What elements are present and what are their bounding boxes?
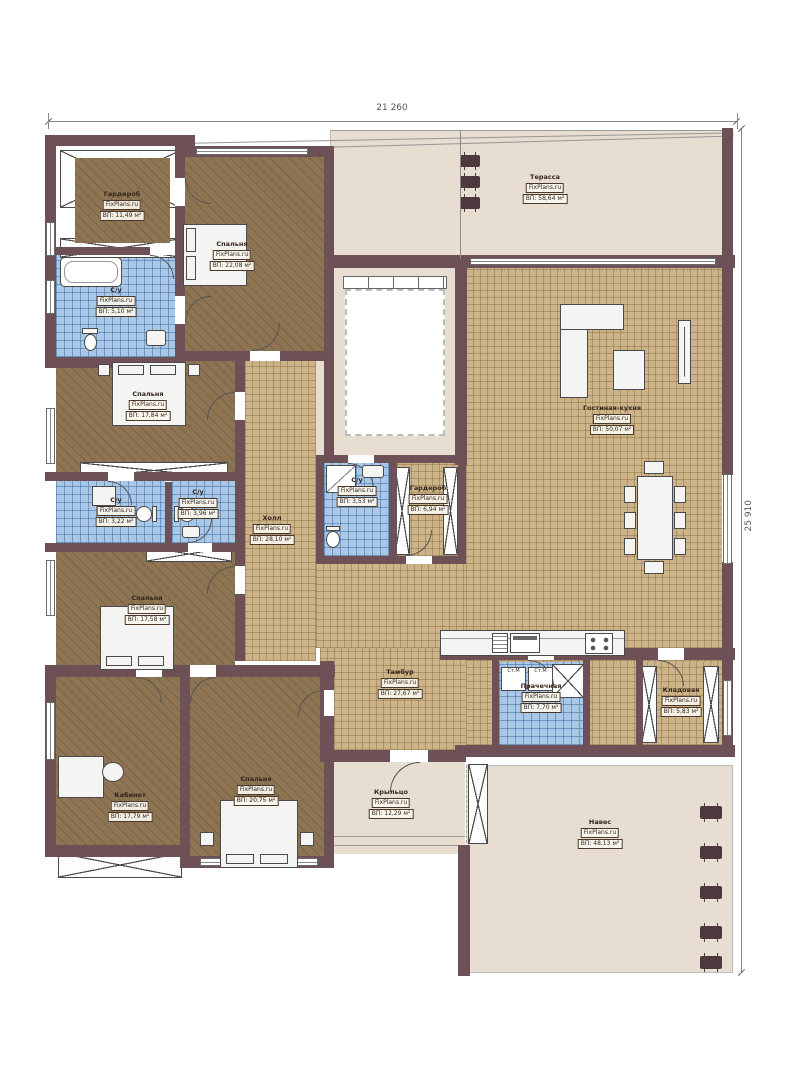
nightstand [300, 832, 314, 846]
window [46, 280, 55, 314]
room-name: Навес [589, 818, 611, 827]
column-post [700, 846, 722, 859]
wall [458, 845, 470, 976]
kitchen-sink [510, 633, 540, 653]
nightstand [98, 364, 110, 376]
door-gap [348, 455, 374, 463]
door-gap [190, 665, 216, 677]
office-chair [102, 762, 124, 782]
wall [389, 463, 397, 556]
pillow [186, 228, 196, 252]
dimension-tick [738, 969, 745, 976]
bathtub [60, 257, 122, 287]
door-gap [188, 543, 212, 552]
toilet [84, 334, 97, 351]
window [46, 560, 55, 616]
door-gap [108, 472, 134, 481]
dimension-line-top [48, 121, 737, 122]
roof-valley-line [460, 131, 461, 259]
watermark: FixPlans.ru [97, 506, 135, 516]
chair [644, 561, 664, 574]
pillow [138, 656, 164, 666]
room-label-wardrobe: Гардероб FixPlans.ru ВП: 11,49 м² [100, 190, 145, 221]
wall [458, 463, 466, 556]
wall [722, 128, 733, 260]
toilet [326, 531, 340, 548]
wall [212, 543, 236, 552]
room-label-storage: Кладовая FixPlans.ru ВП: 5,83 м² [661, 686, 702, 717]
room-area: ВП: 50,07 м² [590, 425, 635, 435]
pillow [118, 365, 144, 375]
wall [324, 146, 334, 462]
room-name: С/у [110, 286, 121, 295]
door-gap [658, 648, 684, 660]
room-area: ВП: 48,13 м² [578, 839, 623, 849]
dimension-ext [737, 113, 738, 129]
chair [644, 461, 664, 474]
room-name: С/у [110, 496, 121, 505]
room-area: ВП: 17,84 м² [126, 411, 171, 421]
door-gap [235, 566, 245, 594]
pillow [260, 854, 288, 864]
chair [674, 512, 686, 529]
room-label-cabinet: Кабинет FixPlans.ru ВП: 17,79 м² [108, 791, 153, 822]
watermark: FixPlans.ru [103, 200, 141, 210]
wall [455, 745, 735, 757]
chair [624, 538, 636, 555]
stove [585, 633, 613, 654]
wall [45, 135, 195, 146]
room-area: ВП: 3,22 м² [96, 517, 137, 527]
room-area: ВП: 17,58 м² [125, 615, 170, 625]
floor-plan: Ст.М Ст.М Гардероб FixPlans.ru ВП: 11,49… [0, 0, 792, 1080]
room-label-bedroom-mid: Спальня FixPlans.ru ВП: 17,84 м² [126, 390, 171, 421]
tv-unit [678, 320, 691, 384]
column-post [460, 176, 480, 188]
wall [316, 463, 324, 556]
wall [235, 420, 245, 566]
pillow [150, 365, 176, 375]
door-gap [235, 392, 245, 420]
room-label-bedroom-top: Спальня FixPlans.ru ВП: 22,08 м² [210, 240, 255, 271]
room-area: ВП: 17,79 м² [108, 812, 153, 822]
room-area: ВП: 27,67 м² [378, 689, 423, 699]
watermark: FixPlans.ru [522, 692, 560, 702]
room-name: Гардероб [410, 484, 447, 493]
floor-tambour [320, 648, 466, 750]
wall [175, 351, 250, 361]
door-gap [252, 351, 280, 361]
chair [674, 486, 686, 503]
column-post [700, 956, 722, 969]
watermark: FixPlans.ru [129, 400, 167, 410]
sink-drainer [492, 633, 508, 653]
window [46, 408, 55, 464]
dining-table [637, 476, 673, 560]
column-post [460, 155, 480, 167]
armchair [613, 350, 645, 390]
watermark: FixPlans.ru [662, 696, 700, 706]
floor-canopy [466, 765, 733, 973]
watermark: FixPlans.ru [381, 678, 419, 688]
dimension-width: 21 260 [350, 103, 434, 113]
room-area: ВП: 3,53 м² [337, 497, 378, 507]
wall [432, 556, 466, 564]
toilet [136, 506, 152, 522]
room-label-tambour: Тамбур FixPlans.ru ВП: 27,67 м² [378, 668, 423, 699]
window [46, 222, 55, 256]
pillow [226, 854, 254, 864]
door-gap [175, 178, 185, 206]
chair [624, 512, 636, 529]
sofa [560, 304, 624, 330]
room-area: ВП: 58,64 м² [523, 194, 568, 204]
watermark: FixPlans.ru [253, 524, 291, 534]
room-name: Кабинет [114, 791, 145, 800]
wall [316, 455, 348, 463]
room-label-living-kitchen: Гостиная-кухня FixPlans.ru ВП: 50,07 м² [583, 404, 641, 435]
dimension-line-right [741, 128, 742, 973]
room-name: Гардероб [104, 190, 141, 199]
window [723, 474, 732, 564]
wall [134, 472, 236, 481]
room-name: Крыльцо [374, 788, 408, 797]
wall [316, 556, 406, 564]
room-area: ВП: 5,10 м² [96, 307, 137, 317]
column-post [700, 886, 722, 899]
room-name: С/у [192, 488, 203, 497]
room-area: ВП: 22,08 м² [210, 261, 255, 271]
dimension-height: 25 910 [744, 500, 754, 532]
room-area: ВП: 20,75 м² [234, 796, 279, 806]
washer-label: Ст.М [534, 668, 546, 674]
room-label-bedroom-low: Спальня FixPlans.ru ВП: 17,58 м² [125, 594, 170, 625]
wall [583, 660, 590, 747]
room-name: Тамбур [386, 668, 414, 677]
room-area: ВП: 7,70 м² [521, 703, 562, 713]
room-name: Гостиная-кухня [583, 404, 641, 413]
washer-label: Ст.М [507, 668, 519, 674]
wall [53, 247, 150, 255]
closet-x [703, 666, 719, 743]
door-gap [175, 296, 185, 324]
window [470, 258, 716, 265]
room-label-bath-396: С/у FixPlans.ru ВП: 3,96 м² [178, 488, 219, 519]
room-name: Спальня [131, 594, 162, 603]
pillow [186, 256, 196, 280]
door-gap [324, 690, 334, 716]
wall [492, 660, 499, 747]
toilet-tank [152, 506, 157, 522]
room-label-hall: Холл FixPlans.ru ВП: 28,10 м² [250, 514, 295, 545]
chair [624, 486, 636, 503]
watermark: FixPlans.ru [526, 183, 564, 193]
room-name: Спальня [132, 390, 163, 399]
wall [722, 255, 733, 475]
column-post [700, 926, 722, 939]
wall [374, 455, 466, 463]
floor-hall [245, 361, 316, 661]
closet-x [641, 666, 657, 743]
window [196, 148, 308, 155]
column-post [460, 197, 480, 209]
watermark: FixPlans.ru [97, 296, 135, 306]
watermark: FixPlans.ru [409, 494, 447, 504]
watermark: FixPlans.ru [372, 798, 410, 808]
room-area: ВП: 6,94 м² [408, 505, 449, 515]
room-area: ВП: 11,49 м² [100, 211, 145, 221]
room-label-bedroom-bottom: Спальня FixPlans.ru ВП: 20,75 м² [234, 775, 279, 806]
room-name: С/у [351, 476, 362, 485]
room-label-terrace: Терасса FixPlans.ru ВП: 58,64 м² [523, 173, 568, 204]
room-label-bath-510: С/у FixPlans.ru ВП: 5,10 м² [96, 286, 137, 317]
desk [58, 756, 104, 798]
nightstand [200, 832, 214, 846]
window-x [468, 764, 488, 844]
chair [674, 538, 686, 555]
room-area: ВП: 28,10 м² [250, 535, 295, 545]
watermark: FixPlans.ru [179, 498, 217, 508]
room-label-laundry: Прачечная FixPlans.ru ВП: 7,70 м² [521, 682, 562, 713]
wall [455, 255, 467, 465]
room-name: Терасса [530, 173, 560, 182]
watermark: FixPlans.ru [111, 801, 149, 811]
column-post [700, 806, 722, 819]
atrium-glazing [343, 276, 447, 289]
watermark: FixPlans.ru [593, 414, 631, 424]
pillow [106, 656, 132, 666]
room-area: ВП: 5,83 м² [661, 707, 702, 717]
watermark: FixPlans.ru [213, 250, 251, 260]
nightstand [188, 364, 200, 376]
door-gap [390, 750, 428, 762]
wall [45, 543, 188, 552]
window [46, 702, 55, 760]
room-name: Холл [262, 514, 281, 523]
watermark: FixPlans.ru [581, 828, 619, 838]
room-label-wardrobe-center: Гардероб FixPlans.ru ВП: 6,94 м² [408, 484, 449, 515]
wall [235, 594, 245, 661]
watermark: FixPlans.ru [237, 785, 275, 795]
wall [235, 361, 245, 392]
washbasin [146, 330, 166, 346]
room-name: Спальня [240, 775, 271, 784]
room-label-bath-322: С/у FixPlans.ru ВП: 3,22 м² [96, 496, 137, 527]
wall [636, 660, 643, 747]
window [723, 680, 732, 736]
wall [45, 845, 190, 857]
door-gap [406, 556, 432, 564]
room-label-canopy: Навес FixPlans.ru ВП: 48,13 м² [578, 818, 623, 849]
wall [216, 665, 335, 677]
atrium-opening-dashed [345, 289, 445, 436]
wall [722, 562, 733, 660]
wall [320, 750, 390, 762]
porch-steps [331, 836, 465, 846]
wall [45, 472, 108, 481]
dimension-ext [48, 113, 49, 129]
room-area: ВП: 12,29 м² [369, 809, 414, 819]
door-gap [150, 247, 174, 255]
room-label-bath-353: С/у FixPlans.ru ВП: 3,53 м² [337, 476, 378, 507]
washbasin [182, 526, 200, 538]
wall [165, 482, 172, 543]
watermark: FixPlans.ru [128, 604, 166, 614]
room-area: ВП: 3,96 м² [178, 509, 219, 519]
room-name: Прачечная [521, 682, 562, 691]
room-label-porch: Крыльцо FixPlans.ru ВП: 12,29 м² [369, 788, 414, 819]
room-name: Кладовая [663, 686, 700, 695]
watermark: FixPlans.ru [338, 486, 376, 496]
wall [280, 351, 334, 361]
room-name: Спальня [216, 240, 247, 249]
wall [180, 671, 190, 868]
